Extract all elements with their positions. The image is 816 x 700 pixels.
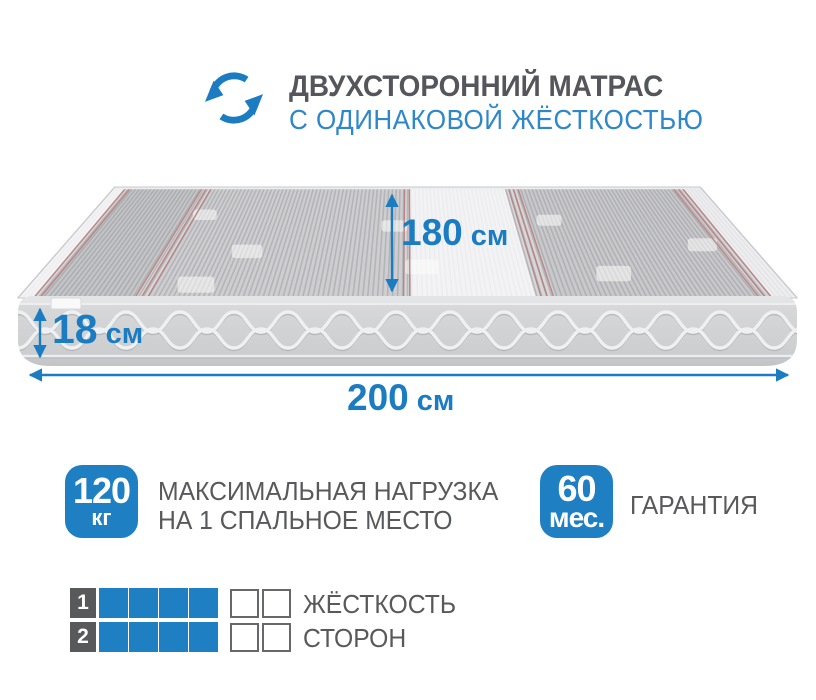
firmness-cell-empty	[262, 589, 291, 618]
firmness-cell-empty	[262, 623, 291, 652]
firmness-row: 2	[70, 622, 294, 652]
max-load-unit: кг	[91, 507, 111, 529]
firmness-row: 1	[70, 588, 294, 618]
depth-value: 180	[401, 212, 463, 253]
firmness-cell-filled	[159, 622, 188, 652]
max-load-label: МАКСИМАЛЬНАЯ НАГРУЗКА НА 1 СПАЛЬНОЕ МЕСТ…	[158, 477, 498, 535]
firmness-side-number: 1	[70, 588, 96, 618]
firmness-labels: ЖЁСТКОСТЬ СТОРОН	[303, 587, 456, 655]
firmness-label-bottom: СТОРОН	[303, 621, 456, 655]
firmness-cell-filled	[159, 588, 188, 618]
height-dimension-label: 18см	[52, 309, 143, 351]
firmness-side-number: 2	[70, 622, 96, 652]
warranty-badge: 60 мес.	[540, 465, 613, 538]
firmness-cell-filled	[99, 622, 128, 652]
length-dimension-label: 200см	[347, 379, 454, 418]
firmness-cell-filled	[189, 622, 218, 652]
firmness-cell-filled	[129, 622, 158, 652]
firmness-cell-filled	[189, 588, 218, 618]
height-value: 18	[52, 306, 98, 352]
warranty-unit: мес.	[549, 505, 604, 531]
depth-unit: см	[471, 220, 509, 252]
max-load-badge: 120 кг	[65, 465, 138, 538]
product-infographic: ДВУХСТОРОННИЙ МАТРАС С ОДИНАКОВОЙ ЖЁСТКО…	[0, 0, 816, 700]
height-unit: см	[106, 318, 144, 350]
firmness-cell-filled	[99, 588, 128, 618]
length-unit: см	[417, 385, 455, 417]
firmness-scale: 1 2	[70, 588, 294, 656]
depth-dimension-label: 180см	[401, 214, 508, 253]
warranty-label: ГАРАНТИЯ	[630, 491, 758, 520]
firmness-label-top: ЖЁСТКОСТЬ	[303, 587, 456, 621]
max-load-value: 120	[73, 474, 130, 507]
length-value: 200	[347, 377, 409, 418]
warranty-value: 60	[557, 472, 595, 505]
firmness-cell-empty	[230, 623, 259, 652]
firmness-cell-empty	[230, 589, 259, 618]
firmness-cell-filled	[129, 588, 158, 618]
